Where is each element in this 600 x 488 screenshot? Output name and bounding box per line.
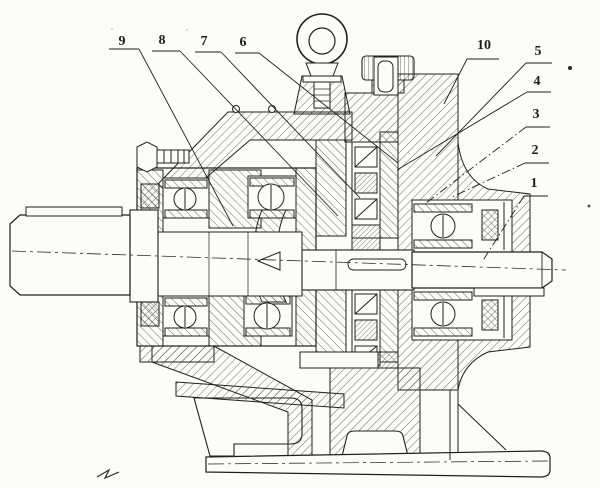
eccentric-block — [352, 225, 380, 251]
cycloid-disc-right-lower — [380, 288, 398, 362]
base-pocket-center — [342, 431, 408, 456]
roller — [355, 320, 377, 340]
callout-label: 3 — [533, 107, 540, 122]
output-shaft — [412, 252, 552, 288]
output-shaft-step — [474, 288, 544, 296]
roller — [355, 173, 377, 193]
cover-bolt-head — [269, 106, 276, 113]
callout-label: 10 — [477, 38, 491, 53]
seal-cross-section — [482, 300, 498, 330]
eye-ring-inner — [309, 28, 335, 54]
callout-label: 6 — [240, 35, 247, 50]
seal-cross-section — [141, 302, 159, 326]
cycloid-disc-left-upper — [316, 140, 346, 236]
stud-pin — [378, 61, 393, 92]
shaft-key — [26, 207, 122, 216]
callout-label: 2 — [532, 143, 539, 158]
housing-lower-left-rib — [140, 346, 214, 362]
cycloid-disc-left-lower — [316, 288, 346, 362]
carrier-spacer — [378, 352, 398, 368]
cycloid-disc-right-upper — [380, 132, 398, 238]
pin-carrier-band — [300, 352, 378, 368]
input-shaft — [10, 215, 130, 295]
seal-cross-section — [141, 184, 159, 208]
seal-cross-section — [482, 210, 498, 240]
input-shaft-collar — [130, 210, 158, 302]
callout-label: 7 — [201, 34, 208, 49]
callout-label: 4 — [534, 74, 541, 89]
bolt-hex-head — [137, 142, 157, 172]
reducer-sectional-drawing: 9 8 7 6 10 5 4 — [0, 0, 600, 488]
callout-label: 9 — [119, 34, 126, 49]
callout-label: 8 — [159, 33, 166, 48]
right-bearing-upper — [412, 200, 512, 252]
technical-drawing-page: 9 8 7 6 10 5 4 — [0, 0, 600, 488]
drum-bearing-upper-left — [163, 178, 209, 218]
callout-label: 1 — [531, 176, 538, 191]
drum-bearing-lower-left — [163, 296, 209, 336]
callout-label: 5 — [535, 44, 542, 59]
